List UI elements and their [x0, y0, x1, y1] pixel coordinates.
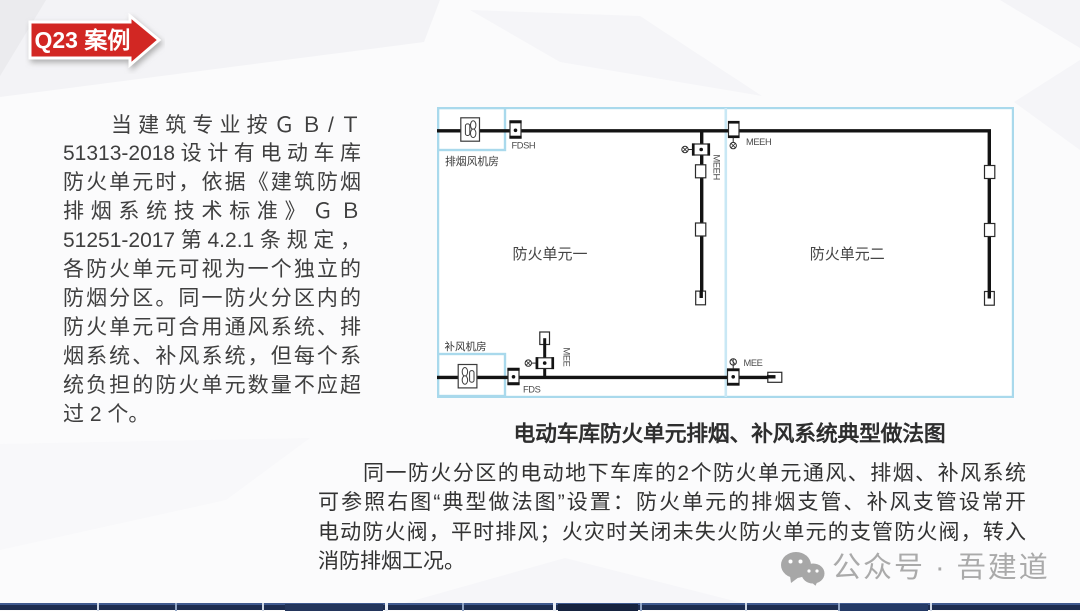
svg-text:排烟风机房: 排烟风机房: [445, 154, 499, 168]
svg-text:MEE: MEE: [562, 348, 572, 367]
svg-text:防火单元一: 防火单元一: [513, 246, 588, 263]
svg-text:MEE: MEE: [744, 358, 763, 368]
svg-text:FDSH: FDSH: [512, 141, 536, 151]
svg-text:MEEH: MEEH: [712, 155, 722, 180]
svg-text:补风机房: 补风机房: [445, 340, 487, 353]
svg-text:FDS: FDS: [523, 385, 541, 395]
svg-text:防火单元二: 防火单元二: [810, 246, 885, 263]
svg-text:MEEH: MEEH: [746, 137, 771, 147]
